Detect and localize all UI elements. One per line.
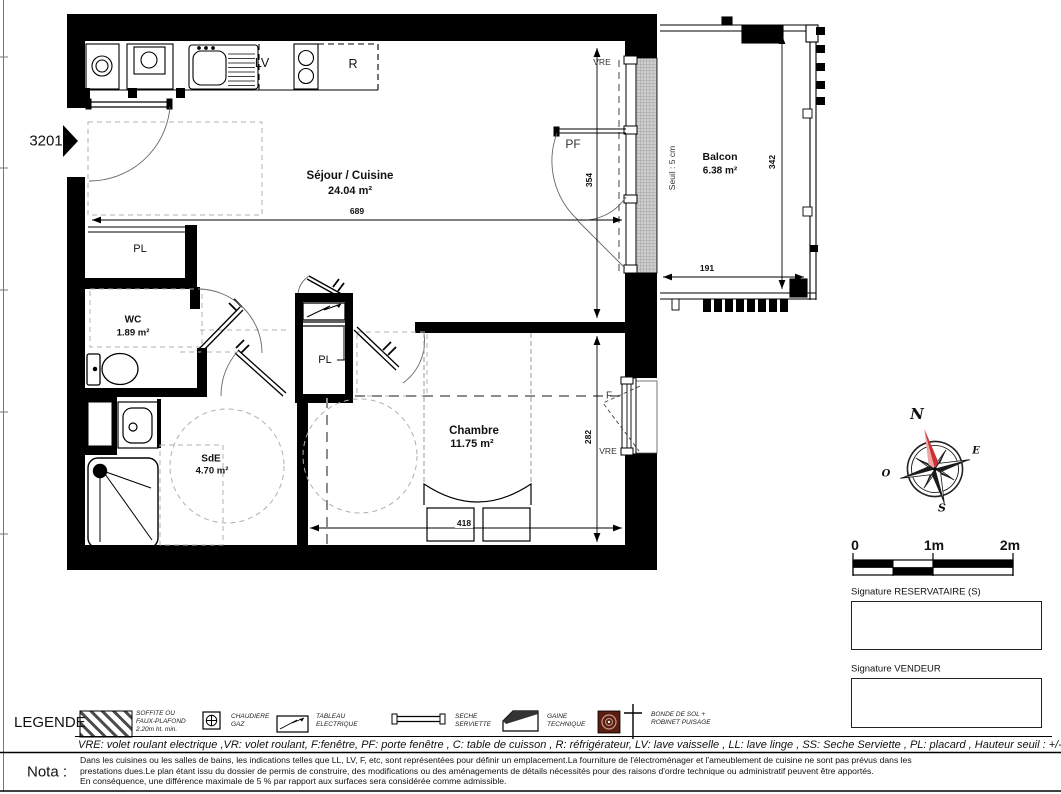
sde-door: [221, 340, 286, 396]
chambre-door: [354, 327, 425, 383]
signature-vendeur-box[interactable]: [851, 678, 1042, 728]
nota-line-2: prestations dues.Le plan étant issu du d…: [80, 766, 874, 776]
balcony: [660, 17, 825, 312]
unit-number: 3201: [29, 133, 62, 150]
room-label-chambre: Chambre: [449, 425, 499, 437]
opening-label-f: F: [606, 391, 612, 402]
glazed-bay: [619, 56, 657, 273]
nota-label: Nota :: [27, 764, 67, 781]
dim-chambre-height: 282: [583, 430, 593, 444]
compass-rose: [889, 419, 979, 513]
dim-sejour-width: 689: [348, 206, 366, 216]
bonde-de-sol-icon: [598, 704, 642, 739]
compass-n: N: [910, 405, 924, 423]
shower: [88, 458, 158, 548]
legend-soffite-label: SOFFITE OU FAUX-PLAFOND 2.20m ht. min.: [136, 710, 186, 733]
soffite-hatch-icon: [80, 711, 132, 737]
entry-door: [86, 99, 172, 181]
entry-arrow: [63, 125, 78, 157]
page-frame: [0, 0, 8, 791]
room-label-sde: SdE: [201, 454, 220, 465]
wc-door: [197, 289, 262, 354]
nota-line-3: En conséquence, une différence maximale …: [80, 776, 506, 786]
appliance-label-r: R: [348, 57, 357, 71]
signature-reservataire-label: Signature RESERVATAIRE (S): [851, 587, 981, 598]
electrical-panel: [303, 303, 352, 360]
legend-tableau-label: TABLEAU ELECTRIQUE: [316, 713, 358, 729]
scale-2m: 2m: [1000, 537, 1020, 553]
signature-vendeur-label: Signature VENDEUR: [851, 664, 941, 675]
room-area-wc: 1.89 m²: [117, 328, 150, 339]
scale-bar: [853, 553, 1013, 576]
bathroom-sink: [118, 402, 158, 448]
dim-balcon-width: 191: [698, 263, 716, 273]
kitchen-fixtures: [85, 44, 378, 90]
opening-label-vre-right: VRE: [599, 446, 616, 456]
room-label-wc: WC: [125, 315, 142, 326]
nota-line-1: Dans les cuisines ou les salles de bains…: [80, 755, 912, 765]
floor-plan-page: 3201 Séjour / Cuisine 24.04 m² WC 1.89 m…: [0, 0, 1061, 794]
room-area-balcon: 6.38 m²: [703, 166, 737, 177]
closet-label-1: PL: [133, 243, 146, 255]
bed: [424, 333, 531, 541]
toilet: [87, 354, 138, 386]
compass-s: S: [938, 502, 946, 515]
gaine-technique-icon: [503, 711, 538, 731]
compass-e: E: [972, 446, 980, 457]
legend-gaine-label: GAINE TECHNIQUE: [547, 713, 585, 729]
seuil-note: Seuil : 5 cm: [667, 146, 677, 190]
room-area-chambre: 11.75 m²: [450, 438, 493, 450]
room-area-sejour: 24.04 m²: [328, 185, 372, 197]
signature-reservataire-box[interactable]: [851, 601, 1042, 650]
chambre-window: [603, 377, 657, 455]
opening-label-vre-top: VRE: [593, 57, 610, 67]
walls: [67, 14, 657, 570]
closet1-front: [88, 227, 185, 232]
compass-o: O: [882, 469, 891, 480]
scale-0: 0: [851, 537, 859, 553]
technical-niche: [88, 402, 112, 446]
legend-seche-label: SECHE SERVIETTE: [455, 713, 491, 729]
dim-sejour-height: 354: [584, 173, 594, 187]
appliance-label-lv: LV: [255, 56, 269, 70]
dim-chambre-width: 418: [455, 518, 473, 528]
room-area-sde: 4.70 m²: [196, 466, 229, 477]
zone-dashed-bold: [327, 396, 624, 545]
scale-1m: 1m: [924, 537, 944, 553]
tableau-electrique-icon: [277, 716, 308, 732]
legend-title: LEGENDE: [14, 714, 86, 732]
room-label-balcon: Balcon: [702, 151, 737, 163]
pf-door: [552, 127, 626, 268]
seche-serviette-icon: [392, 714, 445, 724]
legend-abbreviations: VRE: volet roulant electrique ,VR: volet…: [78, 739, 1061, 752]
chaudiere-icon: [203, 712, 220, 729]
legend-chaudiere-label: CHAUDIERE GAZ: [231, 713, 269, 729]
dim-balcon-height: 342: [767, 155, 777, 169]
floor-plan-drawing: [0, 0, 1061, 794]
legend-bonde-label: BONDE DE SOL + ROBINET PUISAGE: [651, 711, 711, 727]
closet-label-2: PL: [318, 354, 331, 366]
opening-label-pf: PF: [565, 137, 580, 151]
room-label-sejour: Séjour / Cuisine: [307, 170, 394, 182]
